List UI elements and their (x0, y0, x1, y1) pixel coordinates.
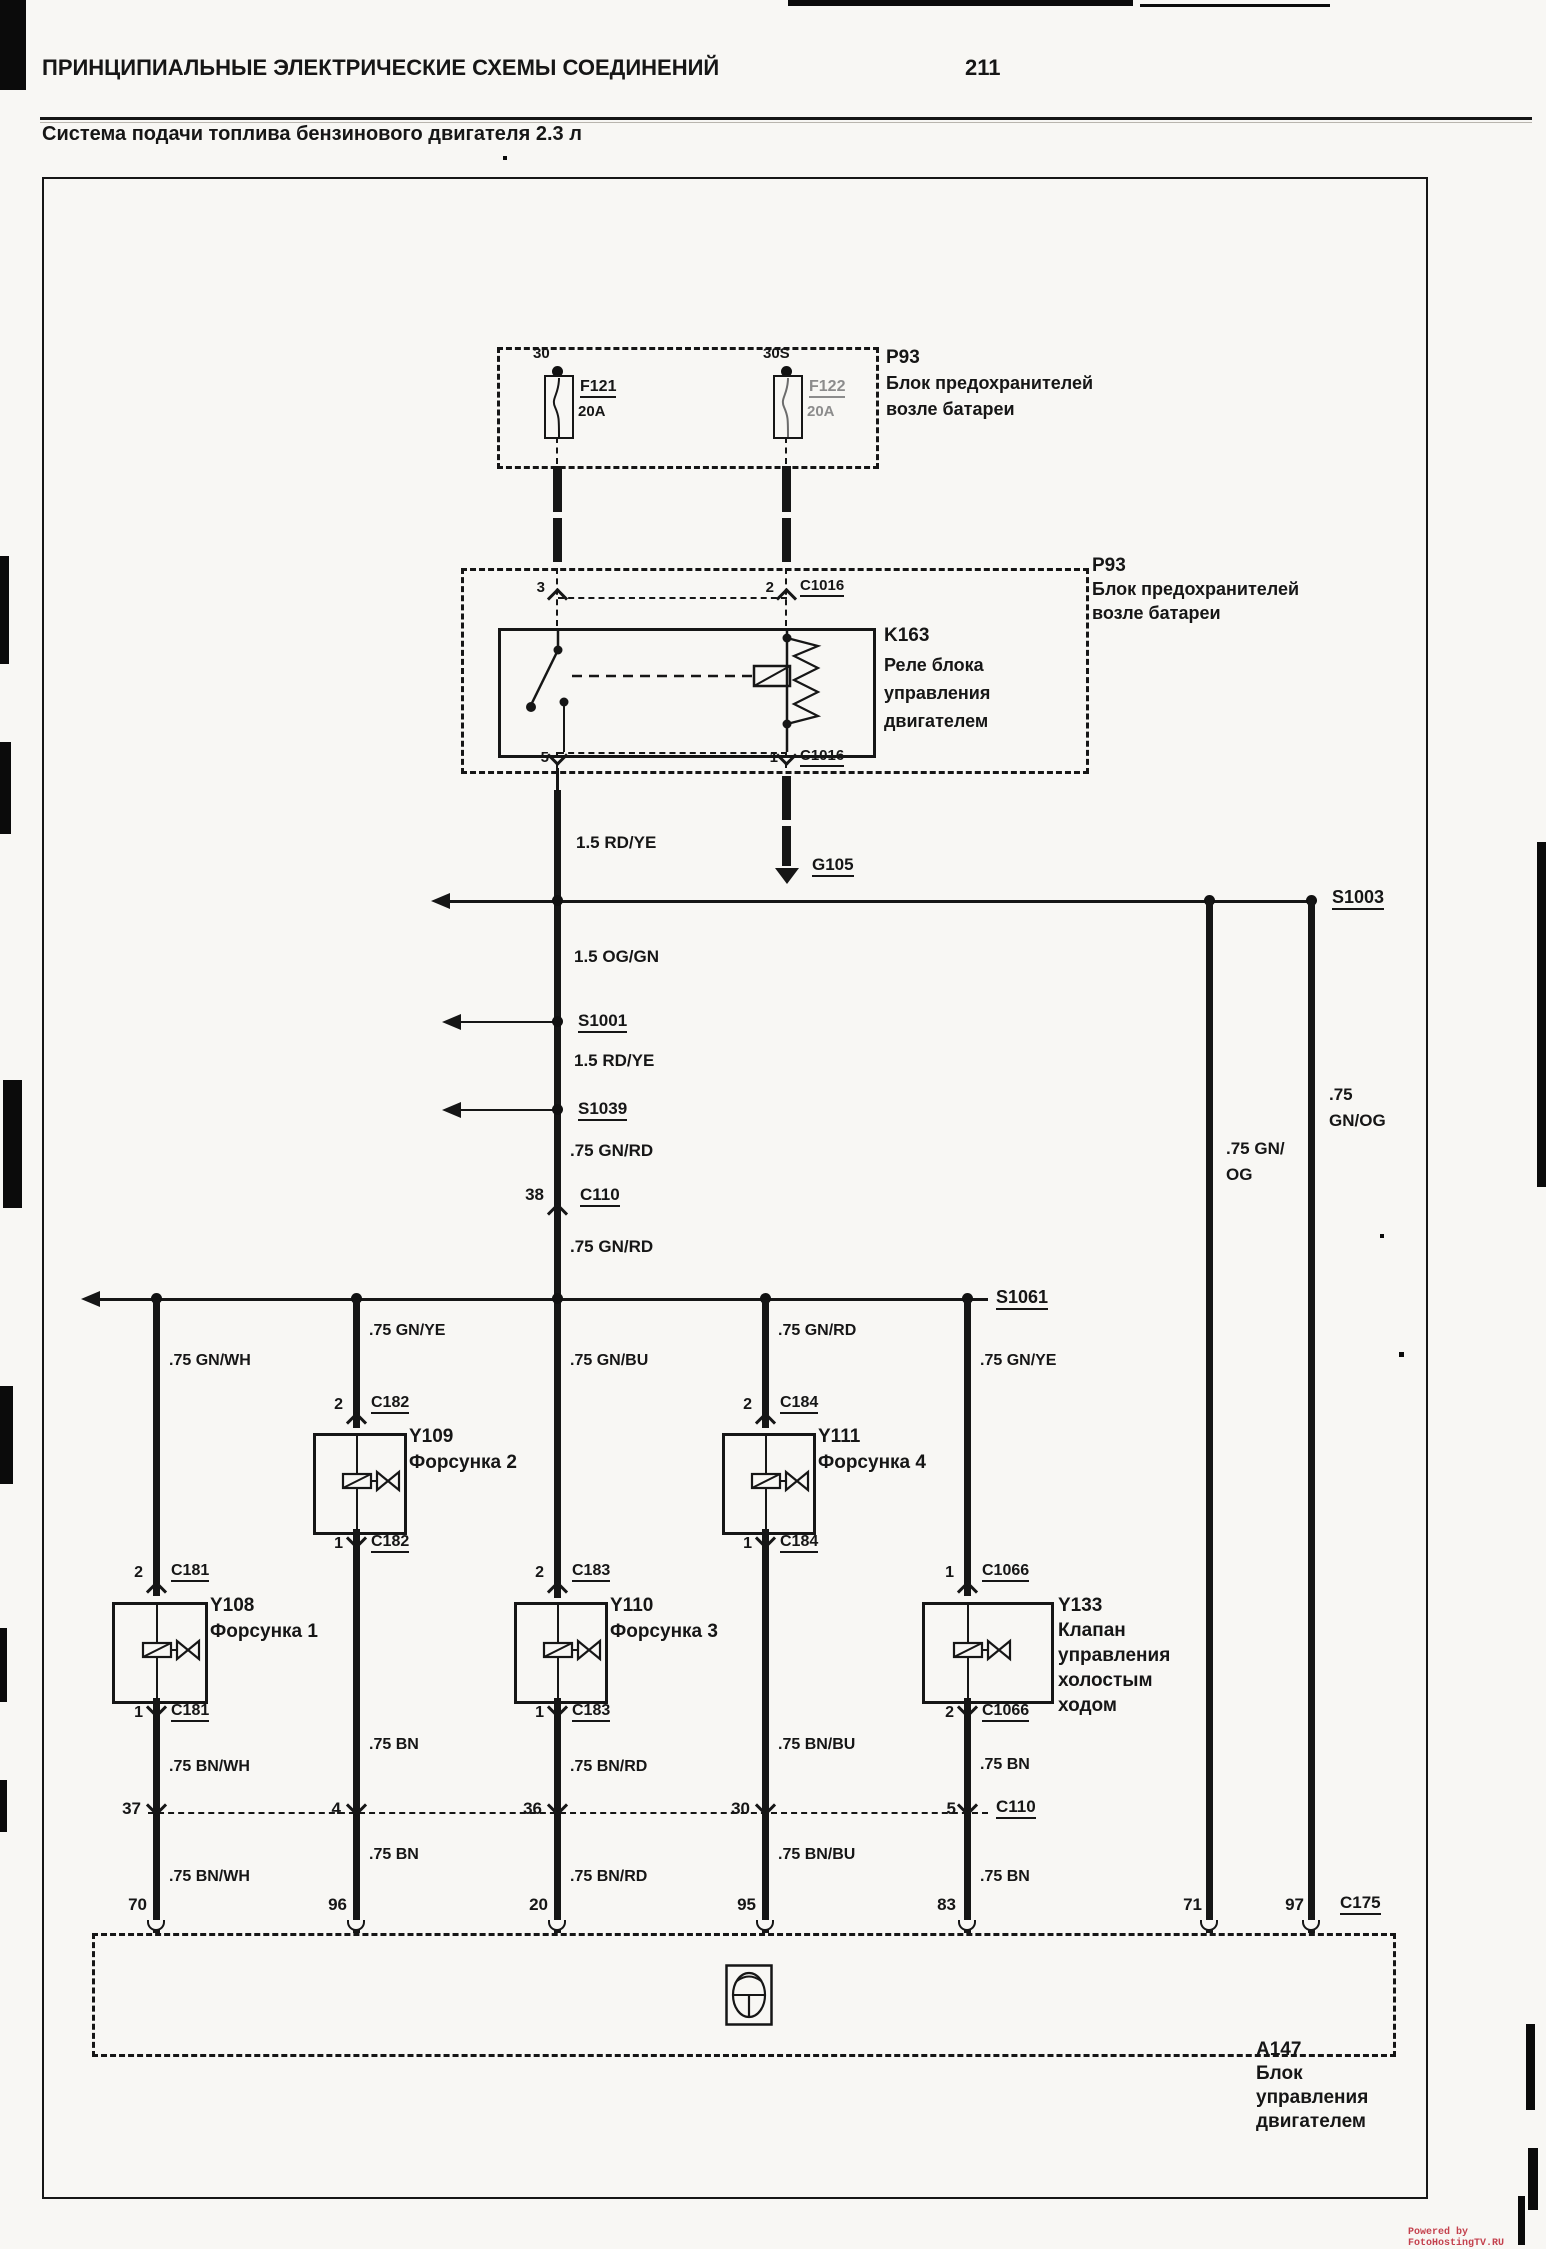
branch3-pin-top: 2 (504, 1564, 544, 1581)
branch2-wire-mid-label: .75 BN (369, 1736, 419, 1753)
branch5-comp-name-1: Клапан (1058, 1621, 1126, 1642)
fuse1-terminal: 30 (533, 346, 550, 362)
branch3-wire-top-label: .75 GN/BU (570, 1352, 648, 1369)
s1001-dot (552, 1016, 563, 1027)
right-wire-1-ecu-pin: 71 (1158, 1896, 1202, 1914)
relay-name-3: двигателем (884, 712, 988, 731)
wire-feed-a1 (553, 466, 562, 512)
branch4-wire-top-label: .75 GN/RD (778, 1322, 856, 1339)
branch4-row-pin: 30 (704, 1800, 750, 1818)
diagram-title: Система подачи топлива бензинового двига… (42, 124, 582, 146)
page-header: ПРИНЦИПИАЛЬНЫЕ ЭЛЕКТРИЧЕСКИЕ СХЕМЫ СОЕДИ… (42, 56, 719, 80)
bus-s1061-arrow-icon (81, 1291, 100, 1307)
right-wire-1 (1206, 900, 1213, 1933)
branch5-wire-top-label: .75 GN/YE (980, 1352, 1056, 1369)
fuse1-rating: 20A (578, 404, 606, 420)
branch1-pin-bot: 1 (103, 1704, 143, 1721)
page-number: 211 (965, 56, 1001, 80)
ground-symbol-icon (775, 868, 799, 884)
branch5-comp-name-3: холостым (1058, 1671, 1153, 1692)
branch5-row-conn: C110 (996, 1798, 1036, 1819)
branch4-ecu-pin: 95 (712, 1896, 756, 1914)
relay-connector-top: C1016 (800, 578, 844, 597)
wire-fuse1-stub (556, 437, 558, 464)
branch2-comp-name: Форсунка 2 (409, 1453, 517, 1474)
right-wire-2-ecu-pin: 97 (1260, 1896, 1304, 1914)
scan-artifact (0, 556, 9, 664)
branch3-conn-bot: C183 (572, 1702, 610, 1722)
ecu-connector-c175: C175 (1340, 1894, 1381, 1915)
branch5-conn-bot: C1066 (982, 1702, 1029, 1722)
wire-label-gnrd2: .75 GN/RD (570, 1238, 653, 1256)
scan-artifact (0, 1780, 7, 1832)
relay-name-1: Реле блока (884, 656, 984, 675)
splice-s1001: S1001 (578, 1012, 627, 1033)
right-wire-2-label-2: GN/OG (1329, 1112, 1386, 1130)
wire-feed-b2 (782, 518, 791, 562)
wire-label-ogn: 1.5 OG/GN (574, 948, 659, 966)
branch2-pin-top: 2 (303, 1396, 343, 1413)
branch5-wire-top (964, 1300, 971, 1596)
injector-y109-symbol-icon (313, 1433, 401, 1529)
branch2-conn-top: C182 (371, 1394, 409, 1414)
fuse2-id: F122 (809, 378, 845, 398)
wire-label-rdye2: 1.5 RD/YE (574, 1052, 654, 1070)
scan-artifact (1526, 2024, 1535, 2110)
right-wire-2-label-1: .75 (1329, 1086, 1353, 1104)
s1039-line (460, 1109, 556, 1111)
fuse1-element-icon (544, 375, 575, 440)
scan-artifact (1399, 1352, 1404, 1357)
splice-s1061: S1061 (996, 1288, 1048, 1310)
branch3-ecu-pin: 20 (504, 1896, 548, 1914)
relay-k163-internals-icon (498, 628, 870, 752)
relay-name-2: управления (884, 684, 990, 703)
scan-artifact (1518, 2196, 1525, 2245)
ecu-name-3: двигателем (1256, 2112, 1366, 2133)
scan-artifact (1140, 4, 1330, 7)
relay-box-name-2: возле батареи (1092, 604, 1221, 623)
branch5-ecu-pin: 83 (912, 1896, 956, 1914)
s1039-arrow-icon (442, 1102, 461, 1118)
branch2-row-pin: 4 (295, 1800, 341, 1818)
branch3-comp-id: Y110 (610, 1596, 653, 1617)
s1061-dot-3 (552, 1293, 563, 1304)
connector-row-c110-line (148, 1812, 988, 1814)
fuse2-element-icon (773, 375, 804, 440)
scan-artifact (0, 1628, 7, 1702)
fuse-box-name-1: Блок предохранителей (886, 374, 1093, 393)
injector-y110-symbol-icon (514, 1602, 602, 1698)
fuse2-rating: 20A (807, 404, 835, 420)
wire-ground-2 (782, 826, 791, 866)
branch1-wire-mid-label: .75 BN/WH (169, 1758, 250, 1775)
wire-feed-b1 (782, 466, 791, 512)
branch1-wire-low-label: .75 BN/WH (169, 1868, 250, 1885)
branch5-conn-top: C1066 (982, 1562, 1029, 1582)
branch1-comp-name: Форсунка 1 (210, 1622, 318, 1643)
wire-label-gnrd1: .75 GN/RD (570, 1142, 653, 1160)
injector-y108-symbol-icon (112, 1602, 202, 1698)
branch3-pin-bot: 1 (504, 1704, 544, 1721)
s1001-line (460, 1021, 556, 1023)
branch1-conn-bot: C181 (171, 1702, 209, 1722)
splice-s1003: S1003 (1332, 888, 1384, 910)
branch5-comp-name-2: управления (1058, 1646, 1170, 1667)
bus-s1003-arrow-icon (431, 893, 450, 909)
wire-label-relay-out: 1.5 RD/YE (576, 834, 656, 852)
branch4-wire-bottom (762, 1529, 769, 1933)
ecu-logo-icon (725, 1964, 773, 2026)
branch2-wire-bottom (353, 1529, 360, 1933)
branch3-row-pin: 36 (496, 1800, 542, 1818)
relay-pin1: 1 (738, 750, 778, 766)
scan-artifact (503, 156, 507, 160)
bus-s1061 (100, 1298, 988, 1301)
injector-y111-symbol-icon (722, 1433, 810, 1529)
branch1-wire-top (153, 1300, 160, 1596)
branch4-conn-top: C184 (780, 1394, 818, 1414)
wire-feed-a2 (553, 518, 562, 562)
relay-pin3: 3 (505, 580, 545, 596)
branch1-comp-id: Y108 (210, 1596, 254, 1617)
scan-artifact (0, 1386, 13, 1484)
splice-s1039: S1039 (578, 1100, 627, 1121)
wire-ground-1 (782, 776, 791, 820)
scan-artifact (3, 1080, 22, 1208)
scan-artifact (0, 0, 26, 90)
right-wire-1-label-2: OG (1226, 1166, 1252, 1184)
branch4-conn-bot: C184 (780, 1533, 818, 1553)
bus-s1003 (450, 900, 1316, 903)
header-rule (40, 117, 1532, 120)
branch4-wire-top (762, 1300, 769, 1428)
right-wire-2 (1308, 900, 1315, 1933)
right-wire-1-label-1: .75 GN/ (1226, 1140, 1285, 1158)
branch4-comp-name: Форсунка 4 (818, 1453, 926, 1474)
ecu-name-2: управления (1256, 2088, 1368, 2109)
scan-artifact (788, 0, 1133, 6)
branch4-pin-top: 2 (712, 1396, 752, 1413)
scan-artifact (1528, 2148, 1538, 2210)
relay-box-id: P93 (1092, 556, 1126, 577)
relay-connector-bottom: C1016 (800, 748, 844, 767)
branch2-ecu-pin: 96 (303, 1896, 347, 1914)
wire-trunk (554, 790, 561, 1598)
scan-artifact (1537, 842, 1546, 1187)
scan-artifact (1380, 1234, 1384, 1238)
branch5-row-pin: 5 (910, 1800, 956, 1818)
branch4-wire-low-label: .75 BN/BU (778, 1846, 855, 1863)
valve-y133-symbol-icon (922, 1602, 1048, 1698)
branch5-comp-id: Y133 (1058, 1596, 1102, 1617)
branch5-comp-name-4: ходом (1058, 1696, 1117, 1717)
branch4-wire-mid-label: .75 BN/BU (778, 1736, 855, 1753)
branch3-wire-mid-label: .75 BN/RD (570, 1758, 647, 1775)
branch2-conn-bot: C182 (371, 1533, 409, 1553)
branch1-ecu-pin: 70 (103, 1896, 147, 1914)
branch2-wire-top-label: .75 GN/YE (369, 1322, 445, 1339)
ecu-name-1: Блок (1256, 2064, 1303, 2085)
branch3-wire-low-label: .75 BN/RD (570, 1868, 647, 1885)
ecu-id: A147 (1256, 2040, 1301, 2061)
branch1-pin-top: 2 (103, 1564, 143, 1581)
relay-id: K163 (884, 626, 929, 647)
s1003-dot-1 (552, 895, 563, 906)
branch1-wire-top-label: .75 GN/WH (169, 1352, 251, 1369)
relay-pin2: 2 (734, 580, 774, 596)
fuse2-terminal: 30S (763, 346, 790, 362)
relay-connector-plane-top (558, 597, 787, 599)
branch3-comp-name: Форсунка 3 (610, 1622, 718, 1643)
wire-trunk-thin (556, 768, 559, 792)
branch1-conn-top: C181 (171, 1562, 209, 1582)
s1039-dot (552, 1104, 563, 1115)
branch3-conn-top: C183 (572, 1562, 610, 1582)
fuse1-id: F121 (580, 378, 616, 398)
branch5-pin-top: 1 (914, 1564, 954, 1581)
branch5-pin-bot: 2 (914, 1704, 954, 1721)
branch5-wire-low-label: .75 BN (980, 1868, 1030, 1885)
s1001-arrow-icon (442, 1014, 461, 1030)
watermark: Powered by FotoHostingTV.RU (1408, 2227, 1546, 2249)
branch2-comp-id: Y109 (409, 1427, 453, 1448)
branch5-wire-mid-label: .75 BN (980, 1756, 1030, 1773)
wire-fuse2-stub (785, 437, 787, 464)
branch2-wire-top (353, 1300, 360, 1428)
relay-box-name-1: Блок предохранителей (1092, 580, 1299, 599)
branch1-row-pin: 37 (95, 1800, 141, 1818)
branch2-pin-bot: 1 (303, 1535, 343, 1552)
scan-artifact (0, 742, 11, 834)
branch4-pin-bot: 1 (712, 1535, 752, 1552)
fuse-box-id: P93 (886, 348, 920, 369)
fuse-box-name-2: возле батареи (886, 400, 1015, 419)
c110-label: C110 (580, 1186, 620, 1207)
ground-id: G105 (812, 856, 854, 877)
c110-pin38: 38 (504, 1186, 544, 1204)
branch4-comp-id: Y111 (818, 1427, 860, 1448)
relay-pin5: 5 (509, 750, 549, 766)
branch2-wire-low-label: .75 BN (369, 1846, 419, 1863)
